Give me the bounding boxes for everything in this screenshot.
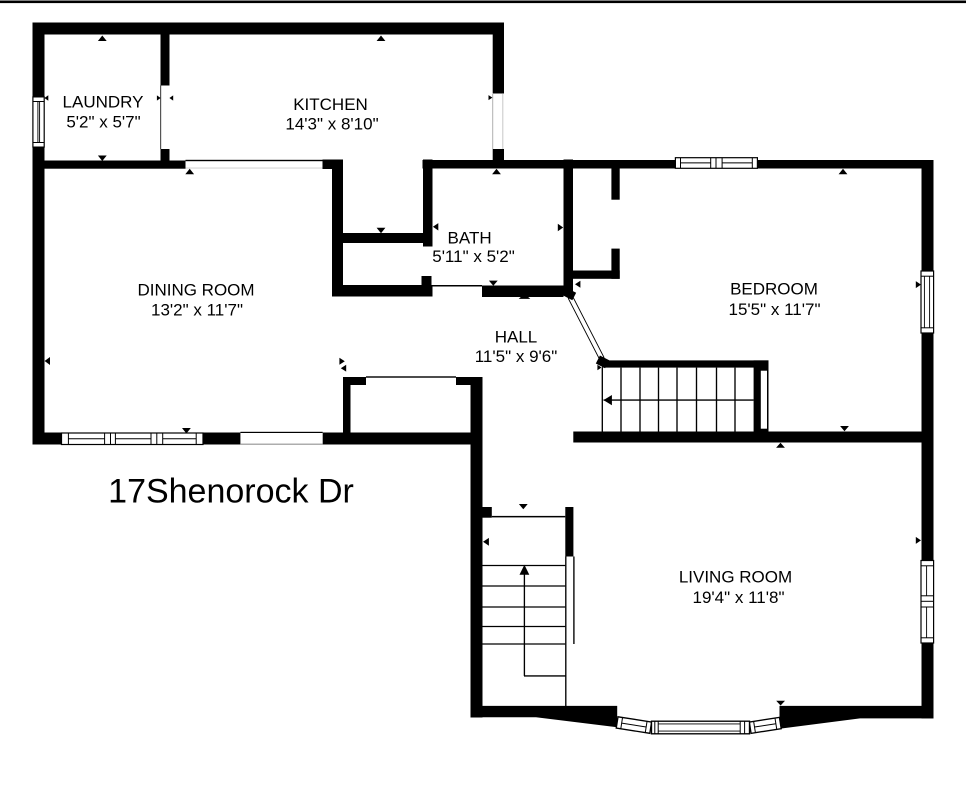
- svg-text:5'2" x 5'7": 5'2" x 5'7": [66, 112, 140, 131]
- svg-text:15'5" x 11'7": 15'5" x 11'7": [729, 300, 821, 319]
- svg-text:13'2" x 11'7": 13'2" x 11'7": [151, 300, 243, 319]
- svg-text:DINING ROOM: DINING ROOM: [137, 280, 254, 299]
- svg-text:19'4" x 11'8": 19'4" x 11'8": [693, 588, 785, 607]
- svg-text:KITCHEN: KITCHEN: [293, 95, 368, 114]
- svg-text:LIVING ROOM: LIVING ROOM: [679, 567, 792, 586]
- svg-text:11'5" x 9'6": 11'5" x 9'6": [475, 347, 558, 366]
- svg-text:BEDROOM: BEDROOM: [730, 280, 818, 299]
- svg-text:HALL: HALL: [495, 328, 538, 347]
- svg-text:5'11" x 5'2": 5'11" x 5'2": [432, 247, 515, 266]
- svg-text:17Shenorock Dr: 17Shenorock Dr: [108, 473, 354, 511]
- svg-text:BATH: BATH: [448, 229, 492, 248]
- svg-text:LAUNDRY: LAUNDRY: [63, 93, 144, 112]
- svg-text:14'3" x 8'10": 14'3" x 8'10": [285, 115, 378, 134]
